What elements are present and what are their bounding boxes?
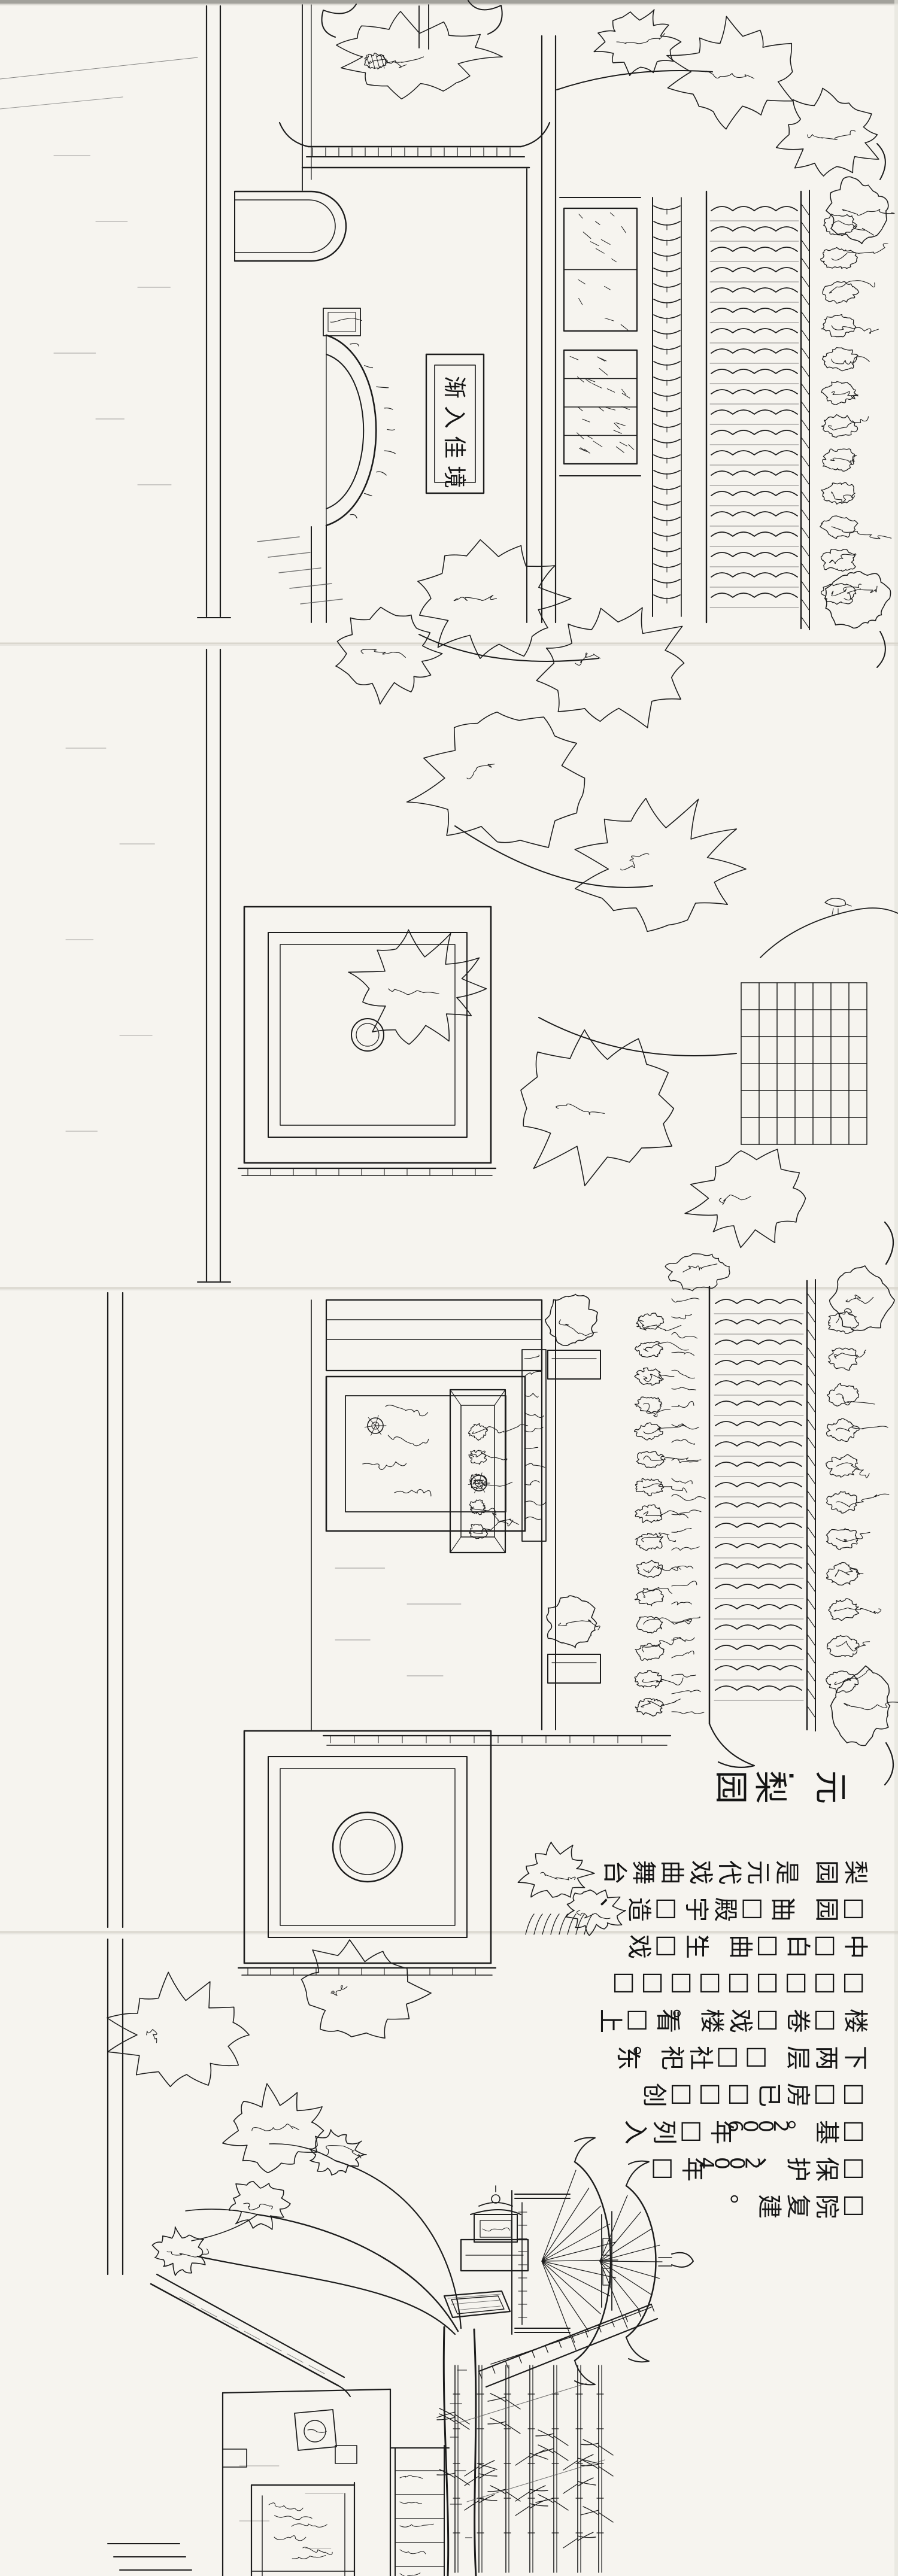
svg-text:□: □ (669, 1972, 697, 1995)
svg-text:□: □ (784, 1972, 812, 1995)
entrance-arch-gate (235, 1, 550, 622)
svg-text:戏: 戏 (624, 1934, 653, 1959)
svg-text:□: □ (715, 2046, 744, 2069)
svg-text:已: 已 (755, 2083, 784, 2107)
large-tree (152, 2130, 476, 2576)
svg-text:□: □ (611, 1972, 640, 1995)
garden-wall-trees (107, 1939, 431, 2274)
svg-text:□: □ (697, 1972, 726, 1995)
svg-text:保: 保 (812, 2157, 841, 2182)
svg-text:看: 看 (653, 2009, 682, 2033)
screen-wall-panel (238, 907, 496, 1175)
vertical-scribble-plaque (450, 1390, 528, 1553)
svg-text:年: 年 (708, 2120, 736, 2144)
svg-text:□: □ (812, 2009, 841, 2032)
svg-text:造: 造 (624, 1897, 653, 1922)
svg-text:园: 园 (812, 1860, 841, 1885)
svg-text:宇: 宇 (682, 1897, 711, 1922)
svg-text:白: 白 (784, 1934, 812, 1959)
svg-text:是: 是 (773, 1860, 802, 1885)
page-fold-seams (0, 643, 898, 1934)
theater-facade (542, 36, 894, 667)
svg-text:渐: 渐 (441, 376, 468, 399)
svg-text:院: 院 (812, 2194, 841, 2219)
svg-text:□: □ (640, 1972, 669, 1995)
svg-text:园: 园 (812, 1897, 841, 1922)
svg-text:□: □ (841, 2083, 870, 2106)
svg-text:□: □ (679, 2120, 708, 2143)
svg-text:卷: 卷 (784, 2009, 812, 2033)
svg-text:□: □ (726, 2083, 755, 2106)
svg-text:□: □ (726, 1972, 755, 1995)
svg-text:舞: 舞 (629, 1860, 658, 1885)
trees-top (336, 10, 879, 728)
svg-text:。: 。 (726, 2194, 755, 2219)
ornate-gate-roof (635, 1222, 898, 1785)
svg-text:建: 建 (755, 2194, 784, 2219)
svg-text:□: □ (739, 1897, 768, 1921)
inscription-calligraphy: 梨园是元代戏曲舞台□园、曲□殿宇□造、中□白□曲、生□戏□□□□□□□□□楼□卷… (596, 1860, 870, 2219)
svg-text:□: □ (650, 2157, 679, 2180)
svg-text:梨: 梨 (841, 1860, 870, 1885)
svg-text:年: 年 (679, 2157, 708, 2182)
svg-text:□: □ (812, 1972, 841, 1995)
scanned-sketch-sheet: 渐入佳境 元·梨园 梨园是元代戏曲舞台□园、曲□殿宇□造、中□白□曲、生□戏□□… (0, 0, 898, 2576)
svg-text:中: 中 (841, 1934, 870, 1959)
svg-text:楼: 楼 (697, 2009, 726, 2033)
svg-text:□: □ (841, 1897, 870, 1921)
svg-text:护: 护 (784, 2157, 812, 2182)
svg-text:元: 元 (811, 1770, 850, 1804)
svg-text:□: □ (744, 2046, 773, 2069)
svg-text:两: 两 (812, 2046, 841, 2070)
bamboo-grove (437, 2365, 613, 2572)
svg-text:社: 社 (687, 2046, 715, 2070)
svg-text:□: □ (841, 2194, 870, 2217)
svg-text:台: 台 (600, 1860, 629, 1885)
svg-text:创: 创 (640, 2083, 669, 2107)
svg-text:上: 上 (596, 2009, 624, 2033)
svg-text:东: 东 (614, 2046, 642, 2070)
svg-text:□: □ (812, 2083, 841, 2106)
svg-text:戏: 戏 (726, 2009, 755, 2033)
svg-text:代: 代 (715, 1860, 744, 1885)
svg-text:□: □ (841, 2157, 870, 2180)
svg-text:复: 复 (784, 2194, 812, 2219)
svg-text:曲: 曲 (768, 1897, 797, 1922)
svg-text:曲: 曲 (658, 1860, 687, 1885)
svg-text:□: □ (653, 1897, 682, 1921)
svg-text:、: 、 (596, 1897, 624, 1922)
svg-text:境: 境 (441, 466, 468, 488)
svg-text:□: □ (653, 1934, 682, 1958)
svg-text:□: □ (624, 2009, 653, 2032)
rect-pool-planter (444, 2291, 510, 2317)
svg-text:殿: 殿 (711, 1897, 739, 1922)
svg-text:房: 房 (784, 2083, 812, 2107)
svg-text:□: □ (697, 2083, 726, 2106)
svg-text:列: 列 (650, 2120, 679, 2144)
svg-text:园: 园 (711, 1770, 750, 1804)
ink-drawing: 渐入佳境 元·梨园 梨园是元代戏曲舞台□园、曲□殿宇□造、中□白□曲、生□戏□□… (0, 0, 898, 2576)
svg-text:楼: 楼 (841, 2009, 870, 2033)
svg-text:祀: 祀 (658, 2046, 687, 2070)
title-calligraphy: 元·梨园 (711, 1770, 850, 1804)
svg-text:□: □ (841, 2120, 870, 2143)
svg-text:□: □ (841, 1972, 870, 1995)
left-courtyard-wall-2 (66, 649, 230, 1282)
svg-text:梨: 梨 (750, 1770, 789, 1804)
svg-text:□: □ (812, 1934, 841, 1958)
svg-text:戏: 戏 (687, 1860, 715, 1885)
svg-text:入: 入 (621, 2120, 650, 2144)
svg-text:□: □ (755, 1972, 784, 1995)
left-courtyard-wall-1 (0, 6, 230, 618)
svg-text:基: 基 (812, 2120, 841, 2144)
screen-wall-moon-ring (238, 1731, 496, 1975)
svg-text:入: 入 (441, 406, 468, 429)
svg-text:□: □ (755, 2009, 784, 2032)
svg-text:□: □ (755, 1934, 784, 1958)
svg-text:层: 层 (784, 2046, 812, 2070)
svg-text:元: 元 (744, 1860, 773, 1885)
svg-text:下: 下 (841, 2046, 870, 2070)
stone-lions (108, 1293, 600, 1927)
svg-text:曲: 曲 (726, 1934, 755, 1959)
svg-text:佳: 佳 (441, 436, 468, 458)
trees-middle (348, 712, 898, 1248)
svg-text:生: 生 (682, 1934, 711, 1959)
pergola-trellis (741, 983, 867, 1144)
arch-gate-plaque: 渐入佳境 (426, 354, 484, 493)
side-house (108, 2274, 449, 2576)
svg-text:□: □ (669, 2083, 697, 2106)
main-gate-piers (311, 1300, 671, 1745)
